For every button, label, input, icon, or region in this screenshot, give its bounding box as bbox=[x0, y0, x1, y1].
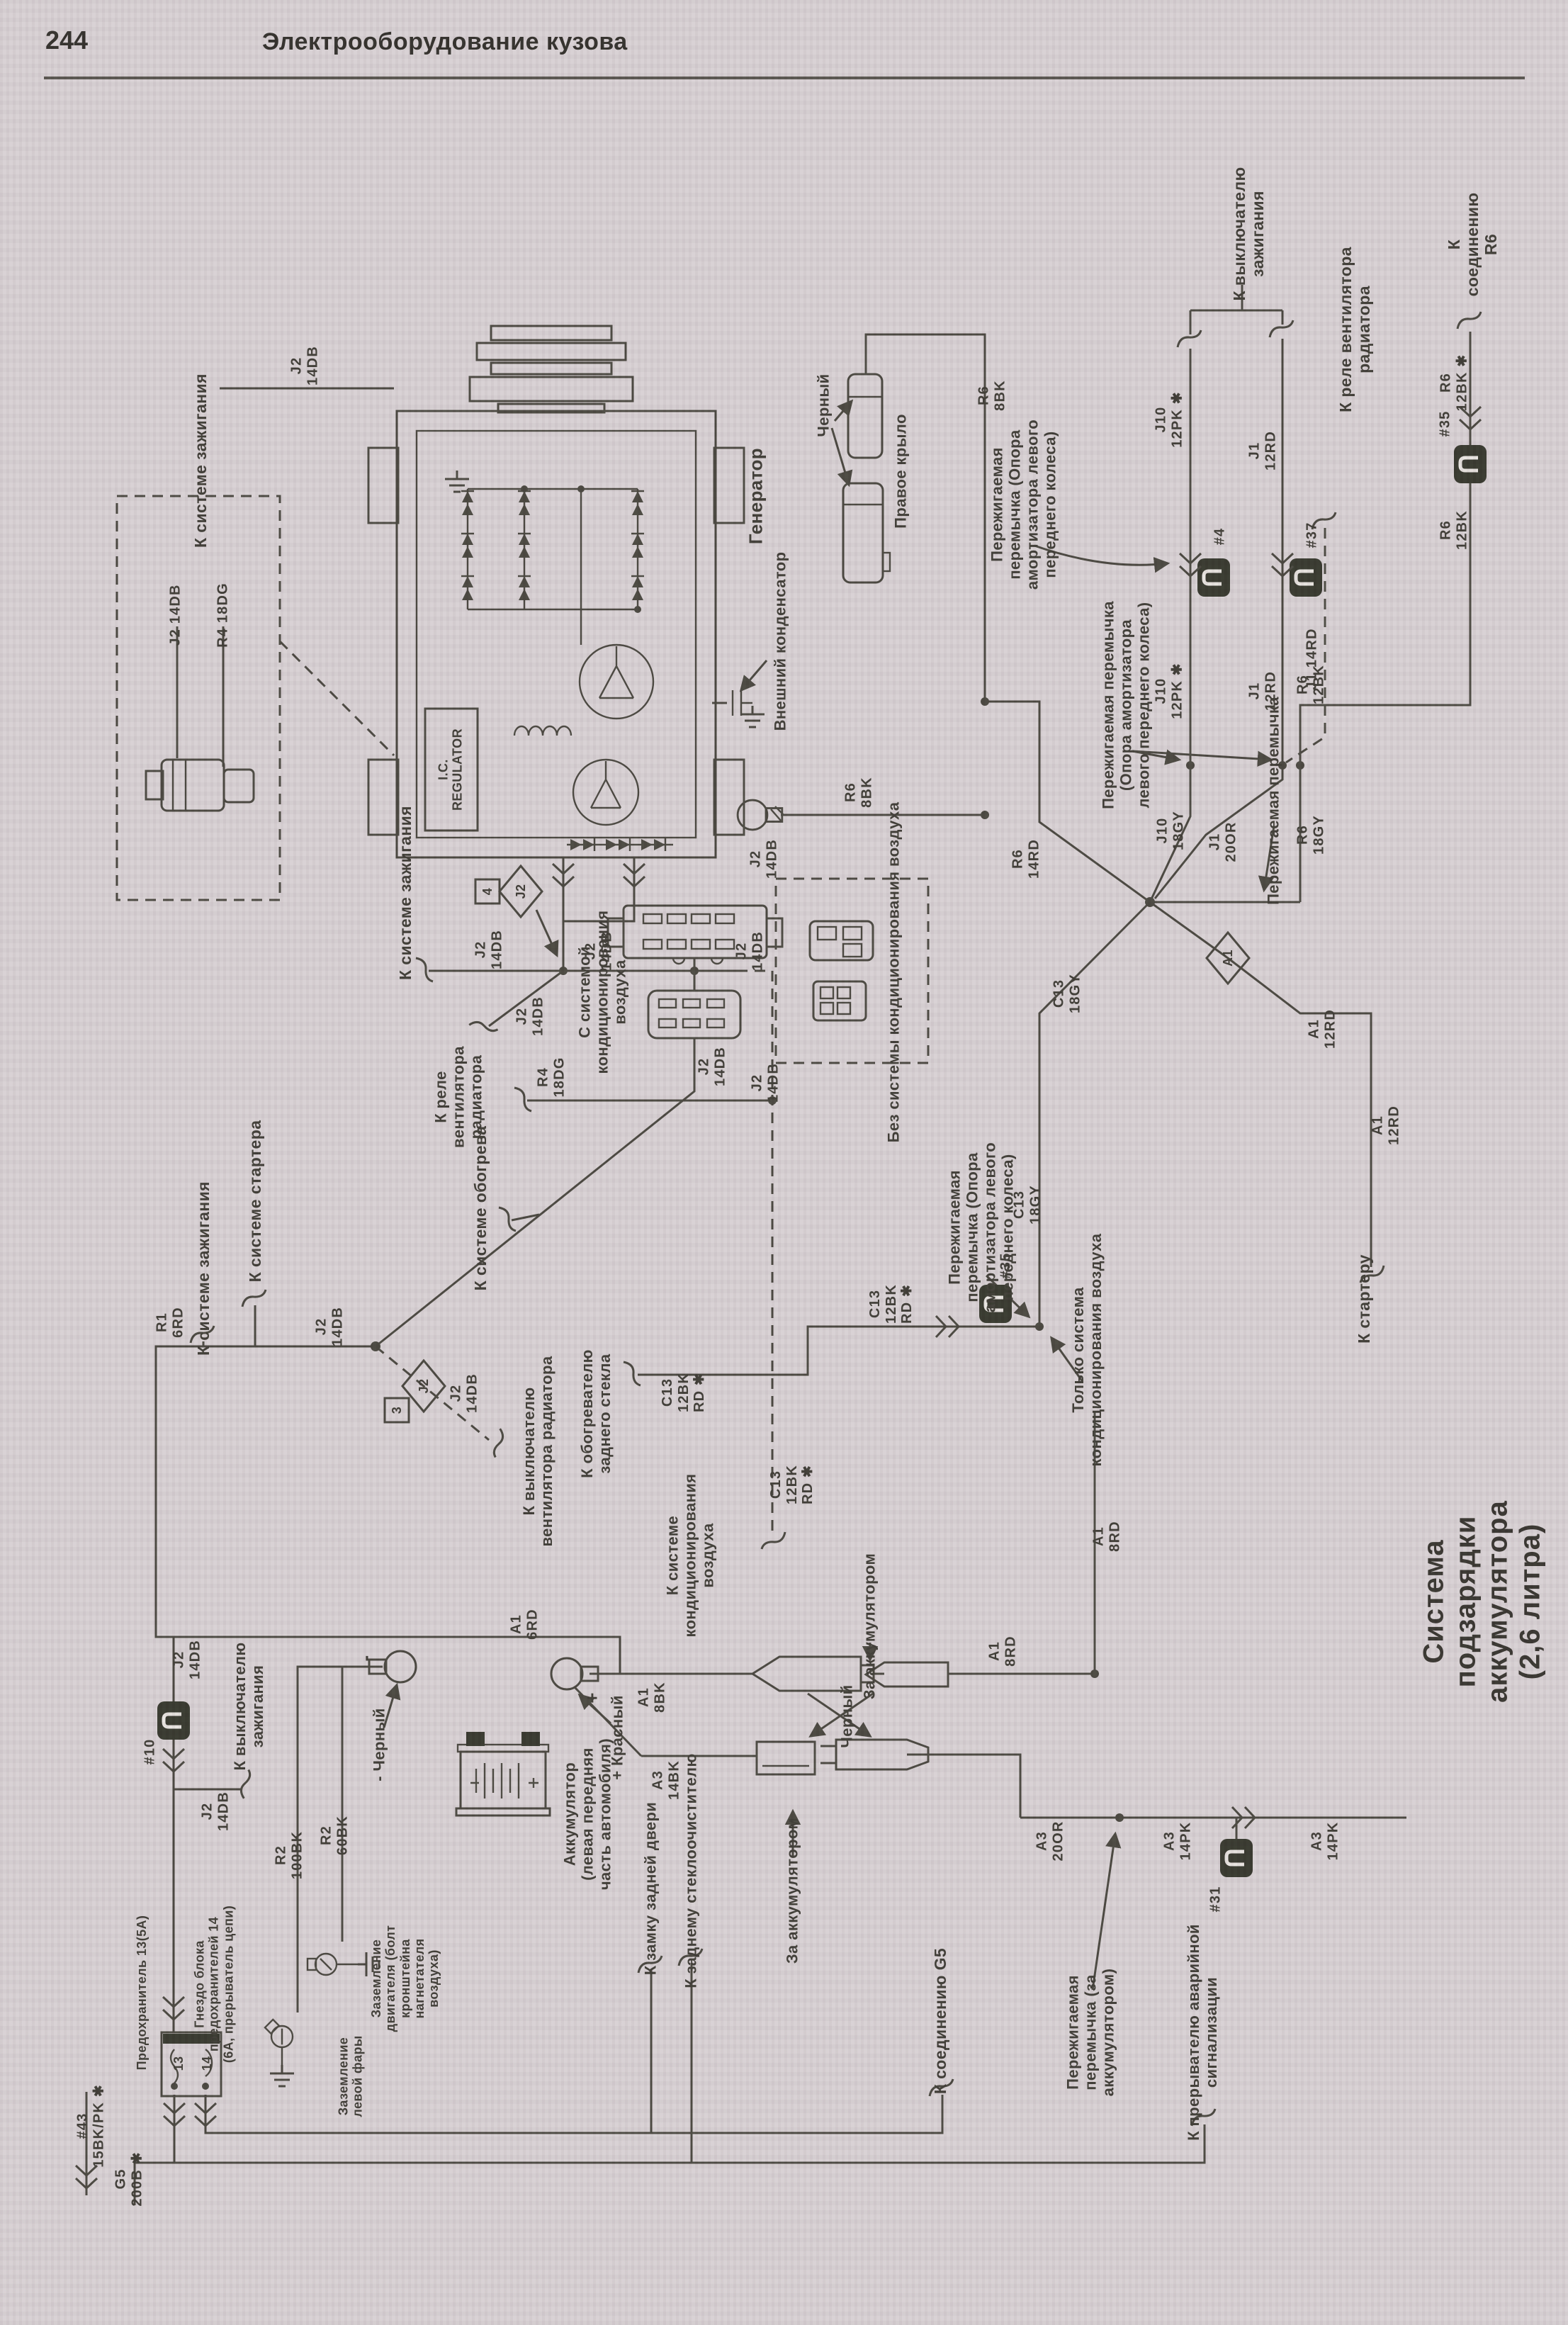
wire-c13-12bk-rd-c: C13 12BK RD ✱ bbox=[768, 1465, 816, 1504]
label-headlight-ground: Заземление левой фары bbox=[337, 2035, 366, 2117]
label-to-radiator-fan-relay: К реле вентилятора радиатора bbox=[433, 1046, 486, 1148]
label-to-rear-window-defogger: К обогревателю заднего стекла bbox=[579, 1349, 614, 1478]
splice-35-top: #35 bbox=[1438, 411, 1454, 437]
wire-a3-20or: A3 20OR bbox=[1034, 1820, 1066, 1861]
label-to-ignition-switch-top: К выключателю зажигания bbox=[1230, 167, 1267, 300]
wire-j10-18gy: J10 18GY bbox=[1154, 811, 1186, 850]
label-black-top: Черный bbox=[816, 373, 833, 437]
label-battery: Аккумулятор (левая передняя часть автомо… bbox=[562, 1738, 615, 1890]
splice-37: #37 bbox=[1304, 522, 1321, 548]
wire-c13-12bk-rd-a: C13 12BK RD ✱ bbox=[660, 1373, 708, 1412]
wire-r6-18gy: R6 18GY bbox=[1295, 815, 1326, 855]
wire-a3-14pk-b: A3 14PK bbox=[1309, 1822, 1341, 1861]
label-to-ignition-system-c: К системе зажигания bbox=[194, 1181, 213, 1356]
wire-j2-14db-i: J2 14DB bbox=[448, 1373, 480, 1413]
splice-31: #31 bbox=[1208, 1886, 1224, 1913]
label-to-ignition-system-a: К системе зажигания bbox=[191, 373, 210, 548]
label-only-ac-system: Только система кондиционирования воздуха bbox=[1070, 1234, 1105, 1467]
label-to-connection-r6: К соединению R6 bbox=[1445, 193, 1500, 297]
wire-a3-14pk-a: A3 14PK bbox=[1161, 1822, 1193, 1861]
splice-10: #10 bbox=[142, 1739, 159, 1765]
label-to-hazard-flasher: К прерывателю аварийной сигнализации bbox=[1185, 1924, 1221, 2141]
plus-terminal-sign: + bbox=[582, 1692, 602, 1704]
minus-terminal-sign: - bbox=[355, 1655, 376, 1661]
wire-c13-18gy-b: C13 18GY bbox=[1051, 974, 1083, 1013]
wire-j2-14db-a: J2 14DB bbox=[473, 930, 504, 969]
label-to-starter: К стартеру bbox=[1355, 1254, 1373, 1344]
note-fusible-link-strut-3: Пережигаемая перемычка (Опора амортизато… bbox=[946, 1142, 1016, 1312]
label-to-rear-wiper: К заднему стеклоочистителю bbox=[683, 1753, 701, 1988]
label-to-connection-g5: К соединению G5 bbox=[931, 1948, 949, 2094]
label-fuse-13: Предохранитель 13(5А) bbox=[135, 1915, 149, 2071]
wire-a1-12rd-a: A1 12RD bbox=[1306, 1009, 1338, 1049]
label-to-radiator-fan-relay-top: К реле вентилятора радиатора bbox=[1336, 223, 1373, 437]
wire-c13-18gy-a: C13 18GY bbox=[1011, 1185, 1043, 1225]
label-to-starter-system: К системе стартера bbox=[246, 1120, 264, 1283]
wire-r2-100bk: R2 100BK bbox=[273, 1831, 305, 1879]
fuse-pos-14: 14 bbox=[200, 2056, 214, 2071]
wire-j2-14db-f: J2 14DB bbox=[749, 1063, 781, 1103]
wire-inset-r4-18dg: R4 18DG bbox=[215, 582, 232, 648]
diamond-j2-b-num: 3 bbox=[390, 1407, 404, 1414]
note-fusible-link-strut-1: Пережигаемая перемычка (Опора амортизато… bbox=[988, 420, 1059, 590]
label-right-fender: Правое крыло bbox=[893, 414, 910, 529]
label-black-minus: - Черный bbox=[371, 1708, 389, 1781]
wire-j2-14db-c: J2 14DB bbox=[582, 931, 614, 971]
label-black-links: Черный bbox=[839, 1684, 857, 1747]
diamond-a1: A1 bbox=[1221, 950, 1235, 967]
wire-r1-6rd: R1 6RD bbox=[154, 1307, 186, 1338]
wire-j2-14db-e: J2 14DB bbox=[748, 839, 779, 879]
wire-a1-12rd-b: A1 12RD bbox=[1370, 1105, 1401, 1145]
note-fusible-link-strut-2: Пережигаемая перемычка (Опора амортизато… bbox=[1100, 601, 1154, 809]
label-fuse-socket-14: Гнездо блока предохранителей 14 (6А, пре… bbox=[193, 1905, 236, 2063]
diamond-j2-b: J2 bbox=[417, 1379, 431, 1394]
note-fusible-link-behind-battery: Пережигаемая перемычка (за аккумулятором… bbox=[1065, 1969, 1118, 2097]
wire-c13-12bk-rd-b: C13 12BK RD ✱ bbox=[867, 1284, 915, 1324]
wire-r4-18dg: R4 18DG bbox=[535, 1057, 567, 1097]
splice-4: #4 bbox=[1212, 528, 1229, 546]
note-fusible-link-plain: Пережигаемая перемычка bbox=[1265, 697, 1283, 905]
label-external-capacitor: Внешний конденсатор bbox=[772, 552, 790, 731]
fuse-pos-13: 13 bbox=[171, 2056, 186, 2071]
wire-r6-12bk-a: R6 12BK bbox=[1438, 510, 1470, 550]
wire-j1-12rd-a: J1 12RD bbox=[1246, 431, 1278, 471]
wire-j1-12rd-b: J1 12RD bbox=[1246, 671, 1278, 711]
wire-r6-12bk-star: R6 12BK ✱ bbox=[1438, 354, 1470, 412]
label-ic-regulator: I.C. REGULATOR bbox=[436, 728, 466, 811]
wire-43-15bk-pk: #43 15BK/PK ✱ bbox=[74, 2084, 106, 2168]
label-to-rear-door-lock: К замку задней двери bbox=[643, 1802, 660, 1975]
wire-r6-12bk-b: R6 12BK bbox=[1295, 665, 1326, 704]
wire-r2-60bk: R2 60BK bbox=[318, 1815, 350, 1855]
wire-j2-14db-k: J2 14DB bbox=[199, 1791, 231, 1831]
wire-inset-j2-14db: J2 14DB bbox=[168, 584, 184, 646]
label-to-ignition-system-b: К системе зажигания bbox=[396, 806, 414, 980]
wire-j10-12pk-b: J10 12PK ✱ bbox=[1153, 663, 1185, 719]
manual-page: 244 Электрооборудование кузова bbox=[0, 0, 1568, 2325]
wire-j10-12pk-a: J10 12PK ✱ bbox=[1153, 391, 1185, 448]
wire-r6-14rd: R6 14RD bbox=[1010, 839, 1042, 879]
label-to-ignition-switch-bottom: К выключателю зажигания bbox=[232, 1642, 267, 1770]
wire-a3-14bk: A3 14BK bbox=[650, 1760, 682, 1800]
wire-j2-14db-top: J2 14DB bbox=[288, 346, 320, 385]
wire-j1-20or: J1 20OR bbox=[1207, 821, 1239, 862]
wire-r6-8bk-a: R6 8BK bbox=[976, 380, 1008, 411]
label-engine-ground: Заземление двигателя (болт кронштейна на… bbox=[369, 1925, 441, 2032]
wire-a1-6rd: A1 6RD bbox=[508, 1609, 540, 1640]
label-behind-battery-2: За аккумулятором bbox=[784, 1818, 802, 1964]
label-to-heating-system: К системе обогрева bbox=[471, 1126, 490, 1291]
wire-j2-14db-d: J2 14DB bbox=[733, 931, 765, 971]
diamond-j2-a-num: 4 bbox=[480, 888, 495, 895]
wire-a1-8bk: A1 8BK bbox=[636, 1682, 667, 1713]
wire-g5-200b: G5 200B ✱ bbox=[113, 2151, 145, 2206]
label-behind-battery-1: За аккумулятором bbox=[862, 1553, 879, 1699]
splice-35-mid: #35 bbox=[998, 1253, 1015, 1279]
wire-j2-14db-j: J2 14DB bbox=[171, 1640, 203, 1679]
wire-j2-14db-b: J2 14DB bbox=[514, 996, 546, 1036]
wire-a1-8rd-a: A1 8RD bbox=[1090, 1521, 1122, 1552]
label-to-ac-system: К системе кондиционирования воздуха bbox=[665, 1473, 718, 1637]
label-to-radiator-fan-switch: К выключателю вентилятора радиатора bbox=[521, 1356, 556, 1547]
wire-j2-14db-g: J2 14DB bbox=[696, 1047, 728, 1086]
wire-r6-8bk-b: R6 8BK bbox=[842, 777, 874, 808]
wire-a1-8rd-b: A1 8RD bbox=[986, 1636, 1018, 1667]
label-without-ac-system: Без системы кондиционирования воздуха bbox=[886, 802, 903, 1143]
wire-j2-14db-h: J2 14DB bbox=[313, 1307, 345, 1346]
diagram-title: Система подзарядки аккумулятора (2,6 лит… bbox=[1418, 1500, 1547, 1703]
diamond-j2-a: J2 bbox=[514, 884, 528, 899]
label-generator: Генератор bbox=[745, 448, 766, 544]
